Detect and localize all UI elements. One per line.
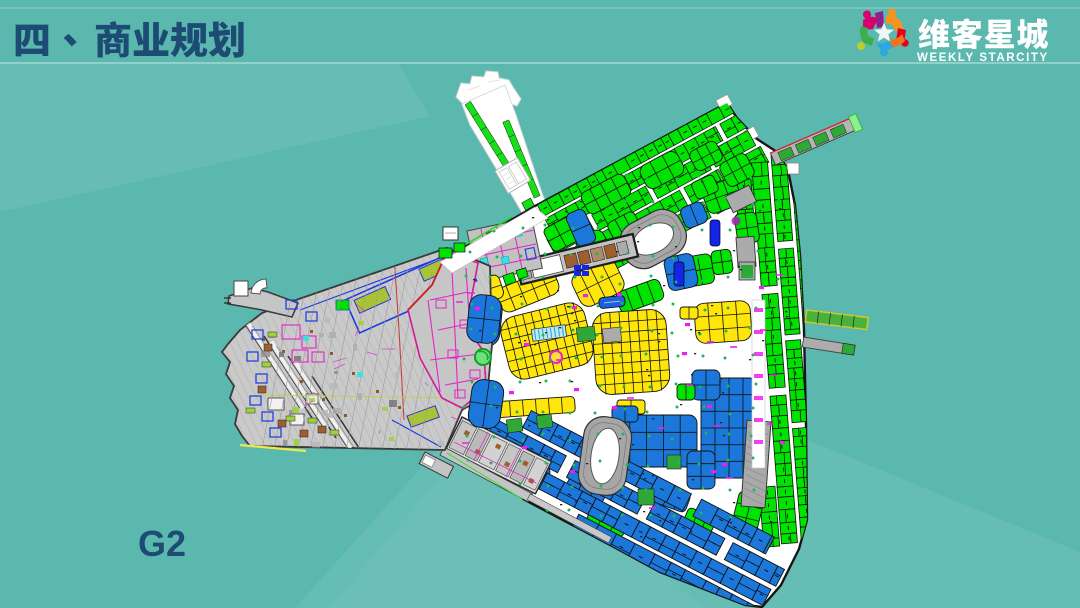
svg-text:WEEKLY STARCITY: WEEKLY STARCITY xyxy=(917,52,1049,64)
svg-text:G2: G2 xyxy=(138,523,186,564)
